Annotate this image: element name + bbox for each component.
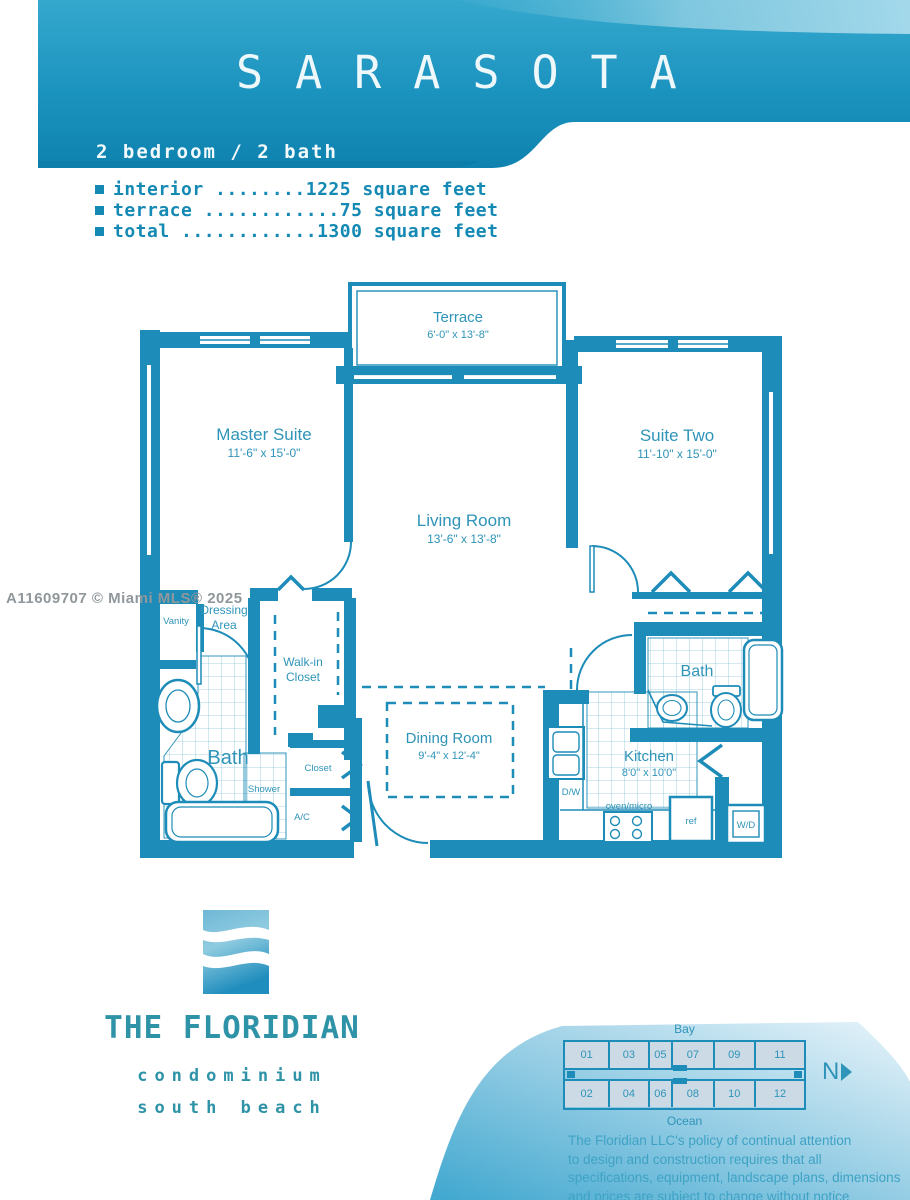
flyer-page: SARASOTA 2 bedroom / 2 bath interior ...… <box>0 0 910 1200</box>
living-room-label: Living Room <box>417 511 512 530</box>
suite-two-label: Suite Two <box>640 426 714 445</box>
master-bath-label: Bath <box>207 747 248 769</box>
hall-closet-label: Closet <box>305 763 332 774</box>
ac-closet-label: A/C <box>294 812 310 823</box>
walkin-closet-label-1: Walk-in <box>283 655 323 669</box>
master-suite-dims: 11'-6" x 15'-0" <box>228 446 301 460</box>
oven-micro-label: oven/micro <box>606 801 652 812</box>
shower-label: Shower <box>248 784 280 795</box>
suite-closet-chevron-icon <box>652 573 690 592</box>
master-suite-label: Master Suite <box>216 425 311 444</box>
terrace-label: Terrace <box>433 309 483 326</box>
kitchen-dims: 8'0" x 10'0" <box>622 767 676 779</box>
bathtub-icon <box>166 802 278 842</box>
dining-room-label: Dining Room <box>406 730 493 747</box>
mls-watermark: A11609707 © Miami MLS® 2025 <box>6 590 243 607</box>
walkin-closet-label-2: Closet <box>286 670 321 684</box>
washer-dryer-label: W/D <box>737 820 756 831</box>
refrigerator-label: ref <box>685 816 696 827</box>
walkin-closet-chevron-icon <box>278 577 304 590</box>
vanity-label: Vanity <box>163 616 189 627</box>
dining-room-dims: 9'-4" x 12'-4" <box>418 750 480 762</box>
bath-two-label: Bath <box>681 663 714 680</box>
kitchen-door-chevron-icon <box>700 745 722 777</box>
entry-door-arc <box>368 781 428 843</box>
terrace-dims: 6'-0" x 13'-8" <box>427 329 489 341</box>
dishwasher-label: D/W <box>562 787 581 798</box>
living-room-dims: 13'-6" x 13'-8" <box>427 532 501 546</box>
suite-closet-chevron-icon <box>729 573 767 592</box>
kitchen-label: Kitchen <box>624 748 674 765</box>
dressing-area-label-2: Area <box>211 618 237 632</box>
master-door-arc <box>304 542 351 589</box>
bathtub-icon <box>744 640 782 720</box>
suite-two-door-arc <box>592 546 638 592</box>
sink-basin-icon <box>166 690 190 722</box>
bath-two-door-arc <box>577 635 632 690</box>
terrace-outline <box>350 284 564 372</box>
suite-two-dims: 11'-10" x 15'-0" <box>637 447 717 461</box>
